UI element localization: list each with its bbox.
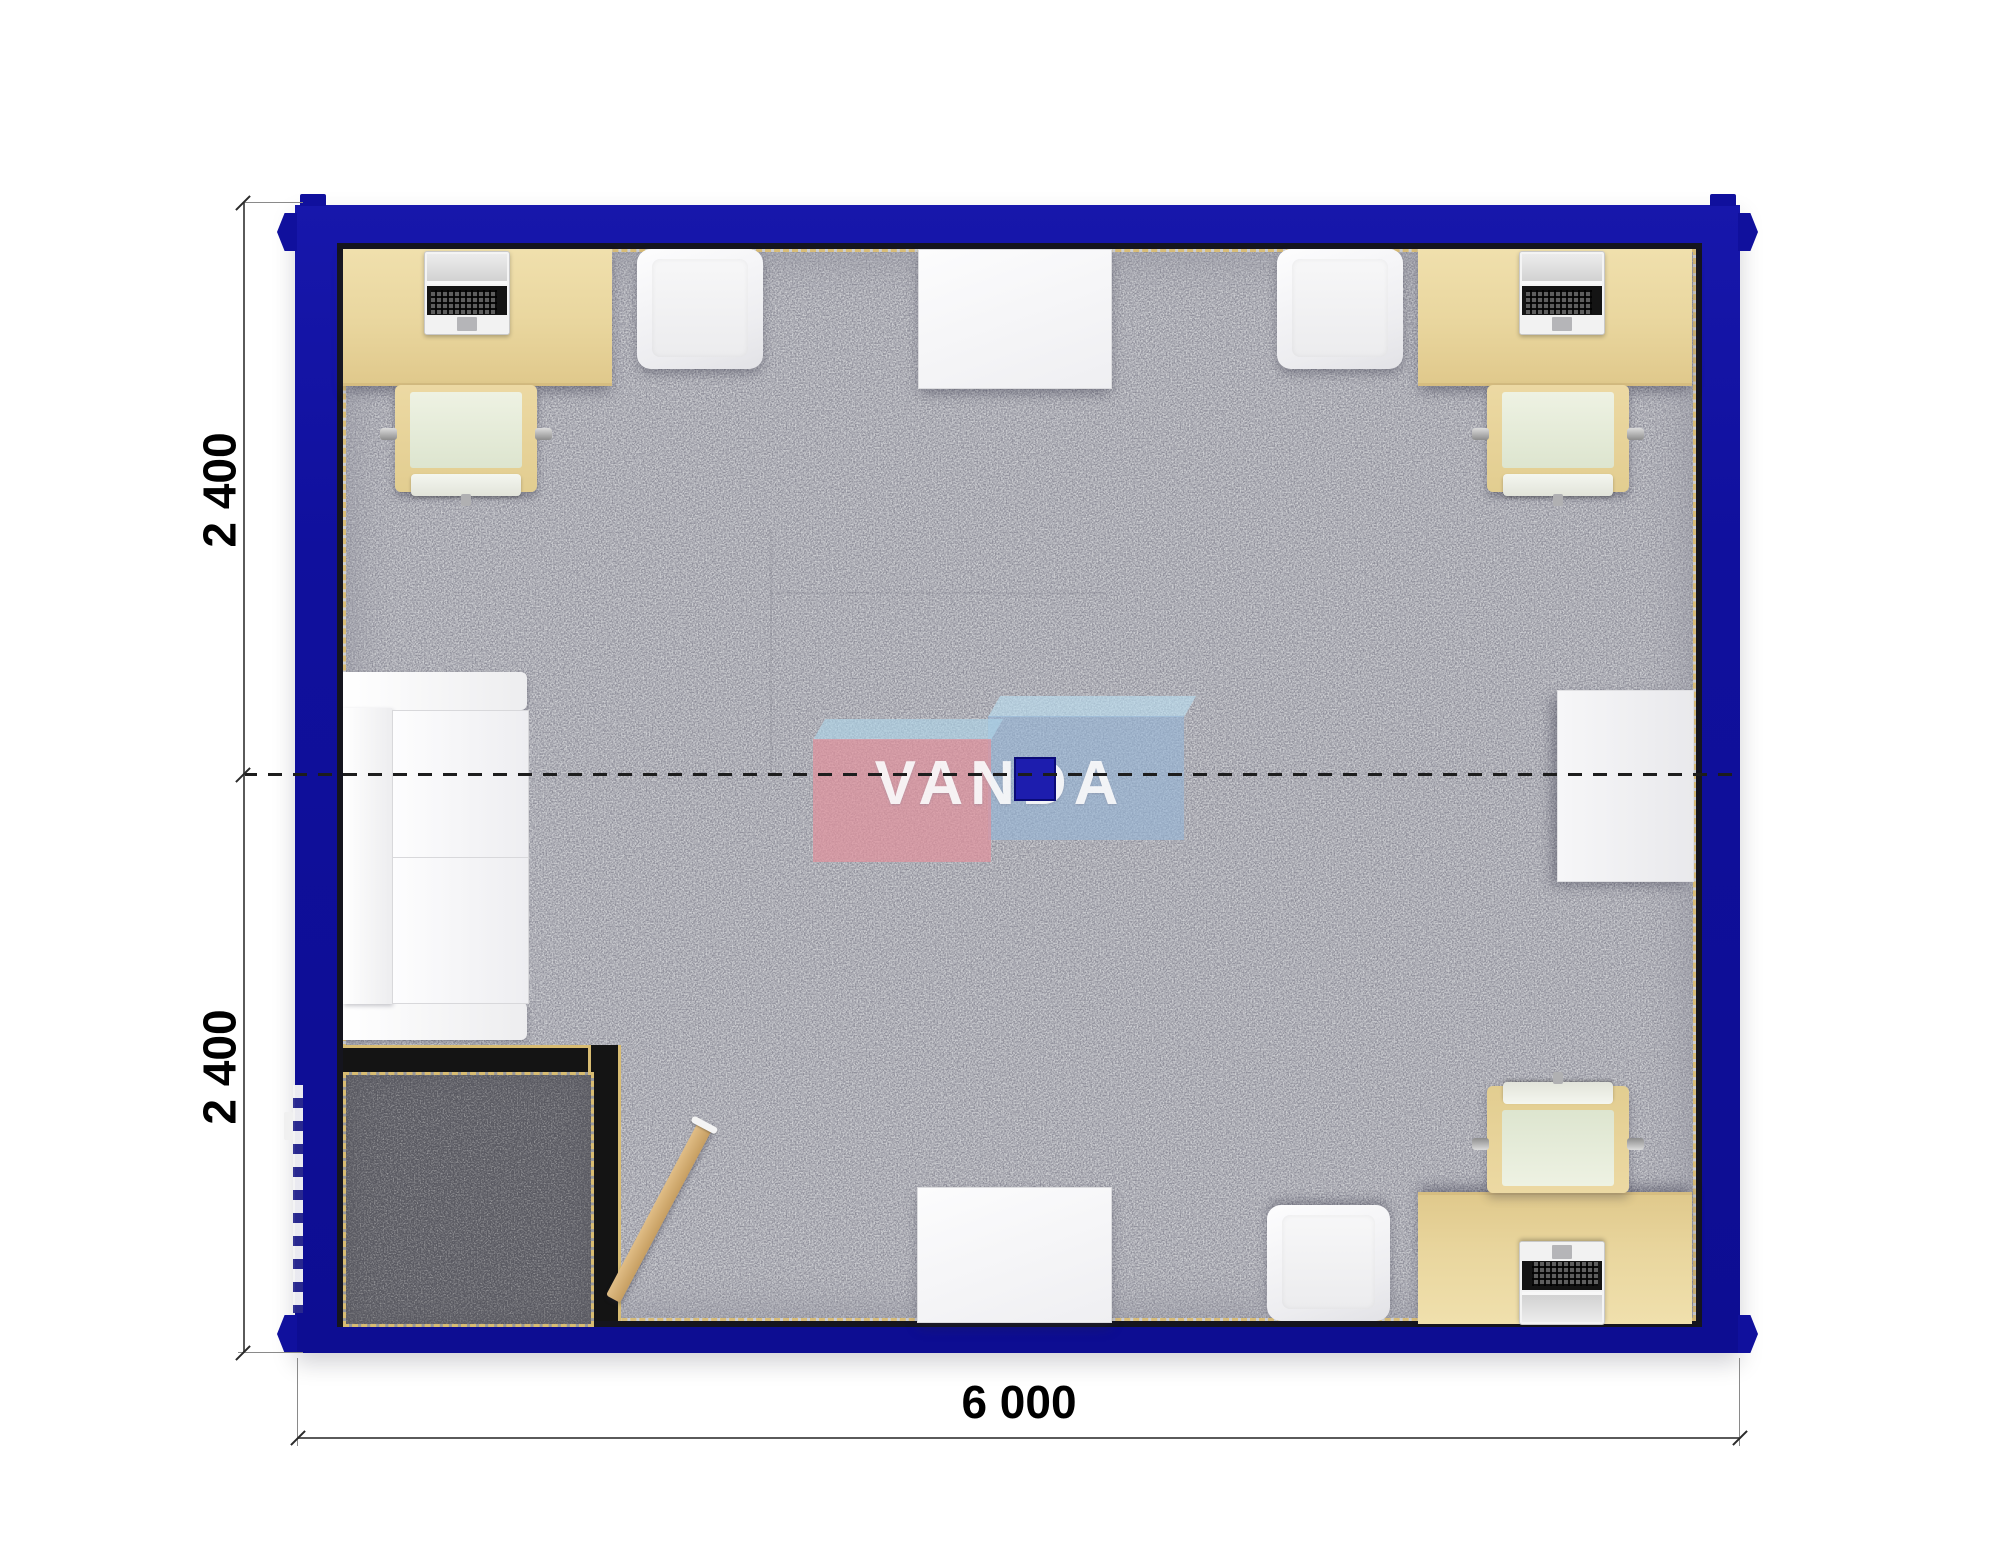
sofa-armrest-top [343, 672, 527, 710]
sofa-cushion [392, 710, 529, 858]
extension-line-bottom-end [1739, 1358, 1740, 1446]
exterior-door-marking [293, 1085, 303, 1313]
table-bottom-center [917, 1187, 1112, 1323]
task-chair-bottom-right [1487, 1086, 1629, 1193]
corner-lug-top-right [1738, 213, 1758, 251]
corner-lug-top-left [277, 213, 297, 251]
dimension-line-left [243, 203, 245, 1353]
carpet-seam [770, 592, 1110, 594]
extension-line-bottom-start [297, 1358, 298, 1446]
watermark-text: VANDA [830, 748, 1170, 818]
armchair-top-right [1277, 249, 1403, 369]
vestibule-noise-texture [346, 1075, 591, 1324]
sofa-armrest-bottom [343, 1002, 527, 1040]
armchair-top-left [637, 249, 763, 369]
watermark-pink-block-top [813, 719, 1003, 740]
side-cabinet-right [1557, 690, 1694, 882]
carpet-seam [770, 530, 772, 772]
task-chair-top-left [395, 385, 537, 492]
module-junction-dashed-line [243, 773, 1741, 776]
laptop-bottom-right [1519, 1241, 1605, 1325]
watermark-blue-block-top [988, 696, 1196, 717]
corner-lug-bottom-left [277, 1315, 297, 1353]
dimension-label-left-top: 2 400 [150, 420, 290, 560]
laptop-screen [427, 254, 507, 284]
floor-electrical-box [1014, 757, 1056, 801]
armchair-bottom [1267, 1205, 1390, 1321]
sofa-backrest [343, 708, 392, 1004]
laptop-top-left [424, 251, 510, 335]
floor-plan-canvas: VANDA [0, 0, 2000, 1561]
dimension-label-bottom: 6 000 [919, 1372, 1119, 1432]
corner-casting-top-right [1710, 194, 1736, 206]
dimension-label-left-bottom: 2 400 [150, 997, 290, 1137]
vestibule-floor-mat [343, 1072, 594, 1327]
dimension-line-bottom [298, 1437, 1740, 1439]
extension-line-bottom-left [238, 1352, 303, 1353]
task-chair-top-right [1487, 385, 1629, 492]
laptop-touchpad [457, 317, 477, 331]
laptop-keyboard [427, 286, 507, 315]
sofa-cushion [392, 857, 529, 1004]
table-top-center [918, 249, 1112, 389]
sofa [343, 672, 527, 1040]
extension-line-top-left [243, 202, 303, 203]
corner-lug-bottom-right [1738, 1315, 1758, 1353]
laptop-top-right [1519, 251, 1605, 335]
corner-casting-top-left [300, 194, 326, 206]
